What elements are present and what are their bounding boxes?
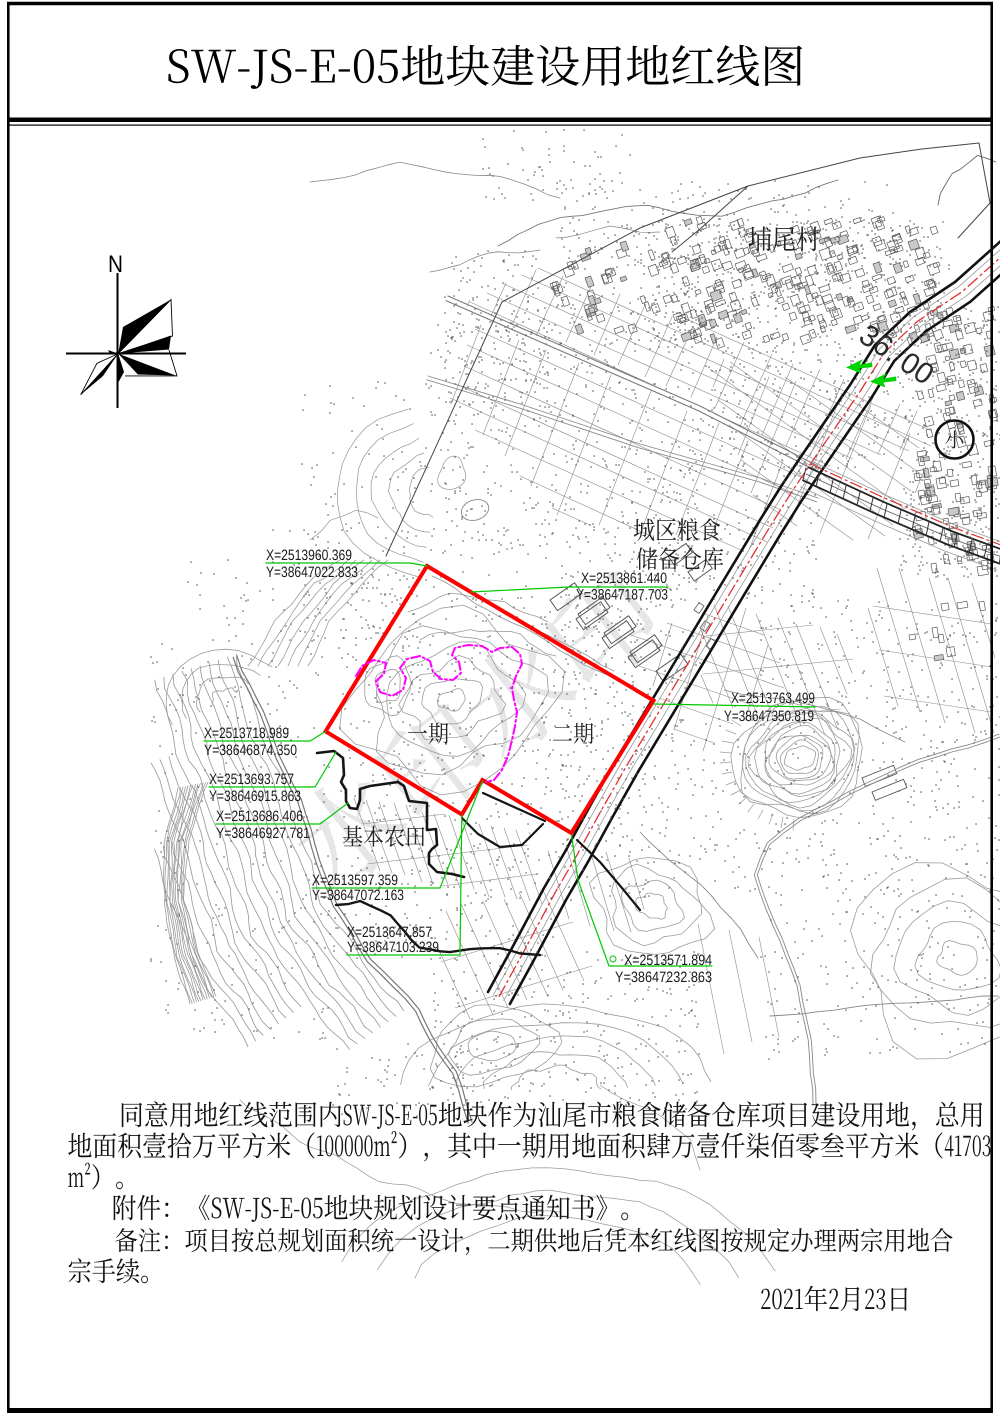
svg-text:Y=38647187.703: Y=38647187.703 [576, 587, 668, 604]
svg-text:X=2513960.369: X=2513960.369 [266, 547, 352, 564]
svg-text:Y=38647103.239: Y=38647103.239 [347, 939, 439, 956]
svg-text:X=2513693.757: X=2513693.757 [209, 771, 294, 788]
svg-text:Y=38646927.781: Y=38646927.781 [216, 825, 310, 842]
svg-text:X=2513861.440: X=2513861.440 [581, 570, 667, 587]
svg-text:Y=38647072.163: Y=38647072.163 [312, 887, 404, 904]
svg-text:Y=38646874.350: Y=38646874.350 [204, 742, 297, 759]
svg-text:Y=38646915.863: Y=38646915.863 [209, 788, 301, 805]
svg-text:Y=38647350.819: Y=38647350.819 [724, 708, 814, 725]
svg-text:X=2513763.499: X=2513763.499 [731, 690, 815, 707]
svg-text:Y=38647232.863: Y=38647232.863 [615, 969, 712, 986]
svg-text:X=2513718.989: X=2513718.989 [204, 725, 289, 742]
svg-text:X=2513686.406: X=2513686.406 [216, 808, 303, 825]
svg-text:X=2513571.894: X=2513571.894 [624, 952, 712, 969]
svg-text:Y=38647022.833: Y=38647022.833 [266, 564, 358, 581]
svg-text:N: N [108, 251, 123, 278]
